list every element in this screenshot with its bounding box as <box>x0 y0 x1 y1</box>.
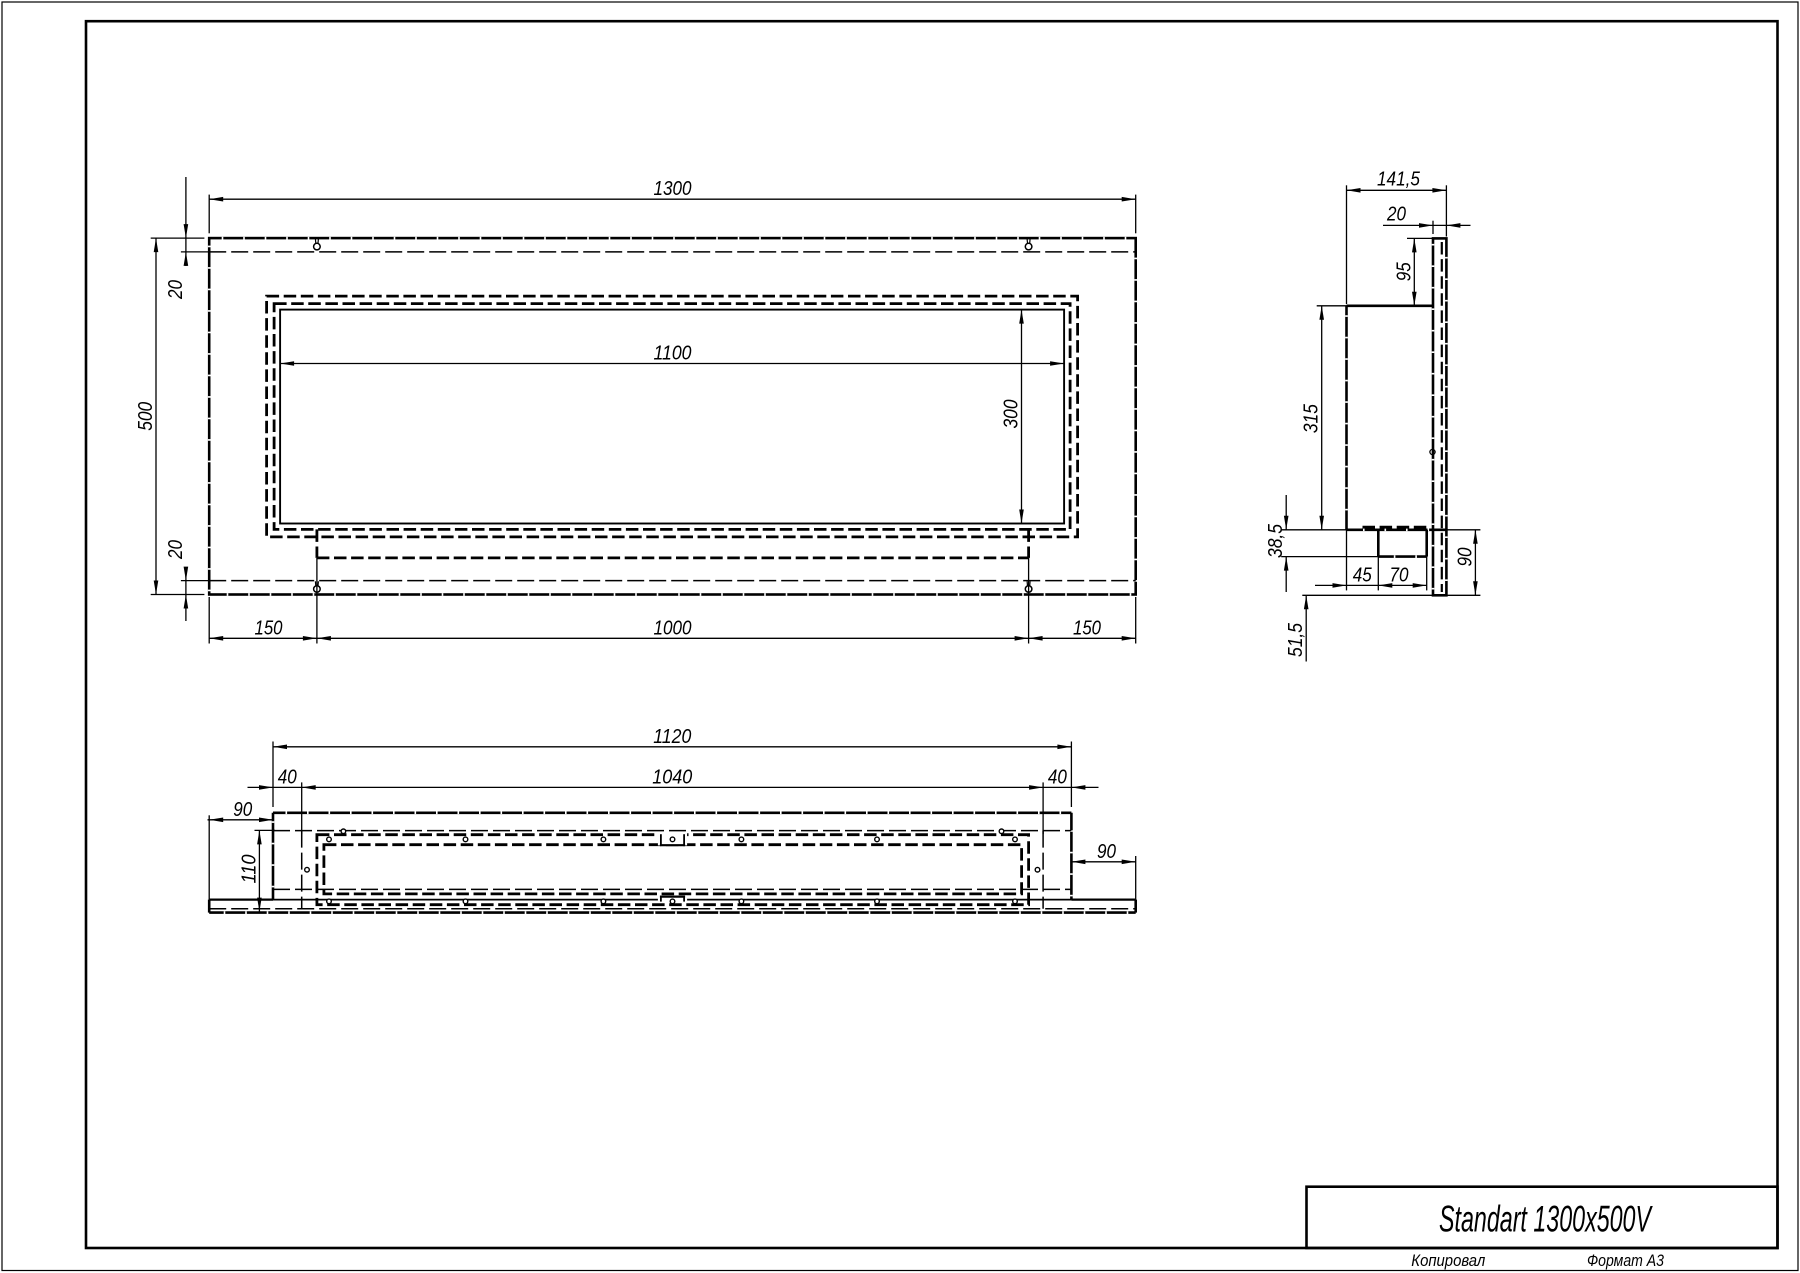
svg-text:500: 500 <box>134 401 157 430</box>
svg-text:1040: 1040 <box>652 765 693 788</box>
svg-text:90: 90 <box>1097 840 1116 863</box>
svg-text:70: 70 <box>1390 563 1409 586</box>
svg-text:110: 110 <box>237 854 260 884</box>
svg-text:40: 40 <box>278 765 297 788</box>
svg-text:95: 95 <box>1392 262 1415 281</box>
svg-text:Копировал: Копировал <box>1411 1252 1485 1270</box>
svg-text:150: 150 <box>1073 616 1101 639</box>
svg-text:1100: 1100 <box>654 342 693 365</box>
svg-text:300: 300 <box>1000 399 1023 428</box>
svg-text:Формат А3: Формат А3 <box>1587 1252 1665 1270</box>
svg-text:150: 150 <box>255 616 283 639</box>
svg-text:90: 90 <box>233 798 252 821</box>
svg-text:40: 40 <box>1048 765 1067 788</box>
svg-text:1000: 1000 <box>654 616 692 639</box>
svg-text:141,5: 141,5 <box>1377 167 1420 190</box>
svg-text:315: 315 <box>1300 404 1323 433</box>
svg-text:38,5: 38,5 <box>1264 523 1287 558</box>
svg-text:51,5: 51,5 <box>1284 622 1307 657</box>
svg-text:1120: 1120 <box>653 725 692 748</box>
svg-text:20: 20 <box>164 540 187 560</box>
svg-text:90: 90 <box>1453 547 1476 566</box>
svg-text:1300: 1300 <box>654 177 692 200</box>
svg-text:Standart 1300x500V: Standart 1300x500V <box>1439 1199 1653 1240</box>
svg-text:45: 45 <box>1353 563 1372 586</box>
svg-text:20: 20 <box>164 280 187 300</box>
svg-text:20: 20 <box>1386 202 1406 225</box>
